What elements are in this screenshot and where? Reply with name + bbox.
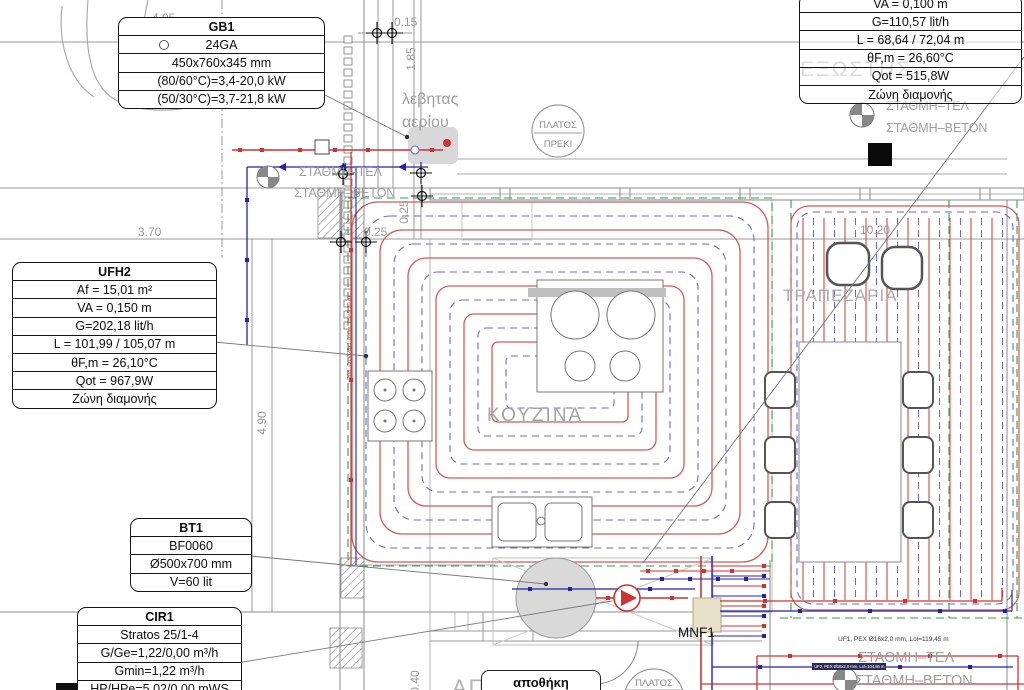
dim-0-15: 0.15 bbox=[394, 15, 417, 29]
manifold-label: MNF1 bbox=[678, 625, 715, 640]
lintel-marker-top: ΠΛΑΤΟΣ ΠΡΕΚΙ bbox=[532, 105, 584, 157]
dim-3-70: 3.70 bbox=[138, 225, 161, 239]
gas-boiler-label-line2: αερίου bbox=[402, 111, 458, 134]
level-concrete-label-3: ΣΤΑΘΜΗ–ΒΕΤΟΝ bbox=[855, 673, 973, 689]
table-row: (80/60°C)=3,4-20,0 kW bbox=[119, 73, 324, 91]
storage-label: αποθήκη bbox=[482, 671, 600, 690]
floorplan-canvas: ΠΛΑΤΟΣ ΠΡΕΚΙ ΠΛΑΤΟΣ 4.05 0.15 1.85 3.70 … bbox=[0, 0, 1024, 690]
level-concrete-label-2: ΣΤΑΘΜΗ–ΒΕΤΟΝ bbox=[886, 121, 987, 135]
gas-boiler-label: λέβητας αερίου bbox=[402, 88, 458, 134]
dim-0-25-a: 0.25 bbox=[364, 225, 387, 239]
table-row: Af = 15,01 m² bbox=[13, 281, 216, 299]
dim-1-85: 1.85 bbox=[404, 41, 418, 77]
cir1-table: CIR1 Stratos 25/1-4 G/Ge=1,22/0,00 m³/h … bbox=[77, 607, 242, 690]
pipe-label-uf1: UF1, PEX Ø16x2,0 mm, Lol=119,45 m bbox=[838, 636, 949, 643]
table-row: θF,m = 26,60°C bbox=[800, 50, 1021, 68]
gas-boiler-label-line1: λέβητας bbox=[402, 88, 458, 111]
dim-0-25-b: 0.25 bbox=[397, 194, 411, 230]
table-row: (50/30°C)=3,7-21,8 kW bbox=[119, 91, 324, 108]
room-label-kitchen: ΚΟΥΖΙΝΑ bbox=[487, 405, 583, 427]
table-row: Qot = 515,8W bbox=[800, 68, 1021, 86]
lintel-marker-bottom: ΠΛΑΤΟΣ bbox=[624, 669, 684, 690]
table-row: VA = 0,150 m bbox=[13, 299, 216, 317]
table-row: G=202,18 lit/h bbox=[13, 318, 216, 336]
dim-0-40: 0.40 bbox=[408, 664, 422, 690]
ufh1-table: VA = 0,100 m G=110,57 lit/h L = 68,64 / … bbox=[799, 0, 1022, 104]
table-row: Stratos 25/1-4 bbox=[78, 626, 241, 644]
lintel-bottom-label: ΠΛΑΤΟΣ bbox=[635, 678, 673, 689]
table-row: Qot = 967,9W bbox=[13, 372, 216, 390]
cir1-title: CIR1 bbox=[78, 608, 241, 626]
table-row: Ζώνη διαμονής bbox=[800, 86, 1021, 103]
room-label-dining: ΤΡΑΠΕΖΑΡΙΑ bbox=[783, 286, 898, 306]
table-row: L = 101,99 / 105,07 m bbox=[13, 336, 216, 354]
table-row: Gmin=1,22 m³/h bbox=[78, 663, 241, 681]
gb1-title: GB1 bbox=[119, 18, 324, 36]
table-row: L = 68,64 / 72,04 m bbox=[800, 31, 1021, 49]
level-concrete-label-1: ΣΤΑΘΜΗ–ΒΕΤΟΝ bbox=[294, 186, 395, 200]
table-row: G/Ge=1,22/0,00 m³/h bbox=[78, 644, 241, 662]
lintel-top-label2: ΠΡΕΚΙ bbox=[544, 139, 573, 150]
gb1-table: GB1 24GA 450x760x345 mm (80/60°C)=3,4-20… bbox=[118, 17, 325, 109]
storage-label-box: αποθήκη bbox=[481, 670, 601, 690]
dim-10-20: 10.20 bbox=[860, 223, 890, 237]
table-row: Ø500x700 mm bbox=[131, 555, 251, 573]
table-row: HP/HPe=5,02/0,00 mWS bbox=[78, 681, 241, 690]
table-row: VA = 0,100 m bbox=[800, 0, 1021, 13]
bt1-table: BT1 BF0060 Ø500x700 mm V=60 lit bbox=[130, 518, 252, 592]
table-row: 450x760x345 mm bbox=[119, 54, 324, 72]
table-row: G=110,57 lit/h bbox=[800, 13, 1021, 31]
table-row: Ζώνη διαμονής bbox=[13, 390, 216, 407]
lintel-top-label1: ΠΛΑΤΟΣ bbox=[539, 120, 577, 131]
table-row: BF0060 bbox=[131, 537, 251, 555]
dim-4-90: 4.90 bbox=[255, 405, 269, 441]
port-circle-icon bbox=[159, 40, 169, 50]
bt1-title: BT1 bbox=[131, 519, 251, 537]
pipe-label-riser: R08, Cu Ø28x1,0 mm, Lol=9,39 m bbox=[347, 290, 353, 386]
ufh2-table: UFH2 Af = 15,01 m² VA = 0,150 m G=202,18… bbox=[12, 262, 217, 409]
table-row: V=60 lit bbox=[131, 574, 251, 591]
level-finish-label-1: ΣΤΑΘΜΗ–ΤΕΛ bbox=[299, 165, 382, 179]
ufh2-title: UFH2 bbox=[13, 263, 216, 281]
table-row: 24GA bbox=[119, 36, 324, 54]
pipe-label-uf2: UF2, PEX Ø16x2,0 mm, Lol=104,86 m bbox=[812, 663, 886, 670]
table-row: θF,m = 26,10°C bbox=[13, 354, 216, 372]
